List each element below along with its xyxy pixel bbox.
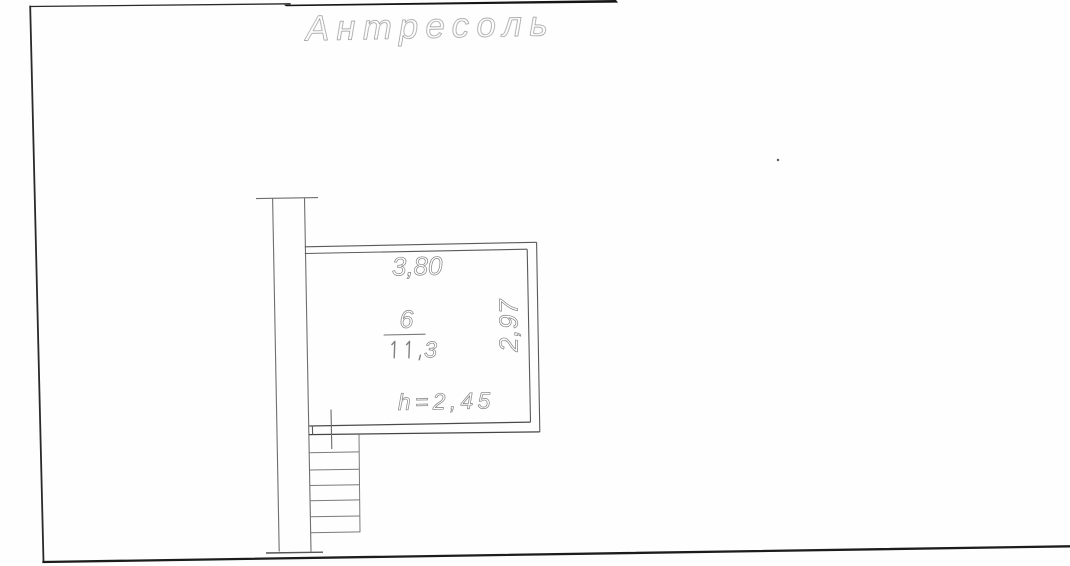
svg-text:2,97: 2,97 bbox=[496, 299, 524, 353]
svg-text:6: 6 bbox=[400, 306, 414, 334]
svg-text:Антресоль: Антресоль bbox=[303, 4, 555, 48]
svg-text:3: 3 bbox=[424, 337, 437, 363]
svg-text:3,80: 3,80 bbox=[392, 251, 444, 282]
svg-text:h=2,45: h=2,45 bbox=[398, 387, 495, 415]
